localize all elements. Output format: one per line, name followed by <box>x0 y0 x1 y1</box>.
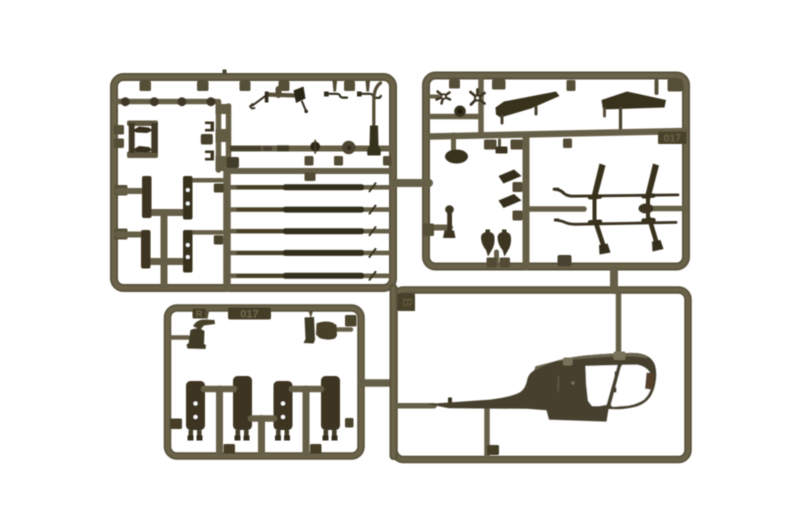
svg-text:R: R <box>196 309 203 319</box>
svg-text:B: B <box>400 298 415 307</box>
svg-text:017: 017 <box>240 309 258 321</box>
svg-text:017: 017 <box>663 132 681 145</box>
